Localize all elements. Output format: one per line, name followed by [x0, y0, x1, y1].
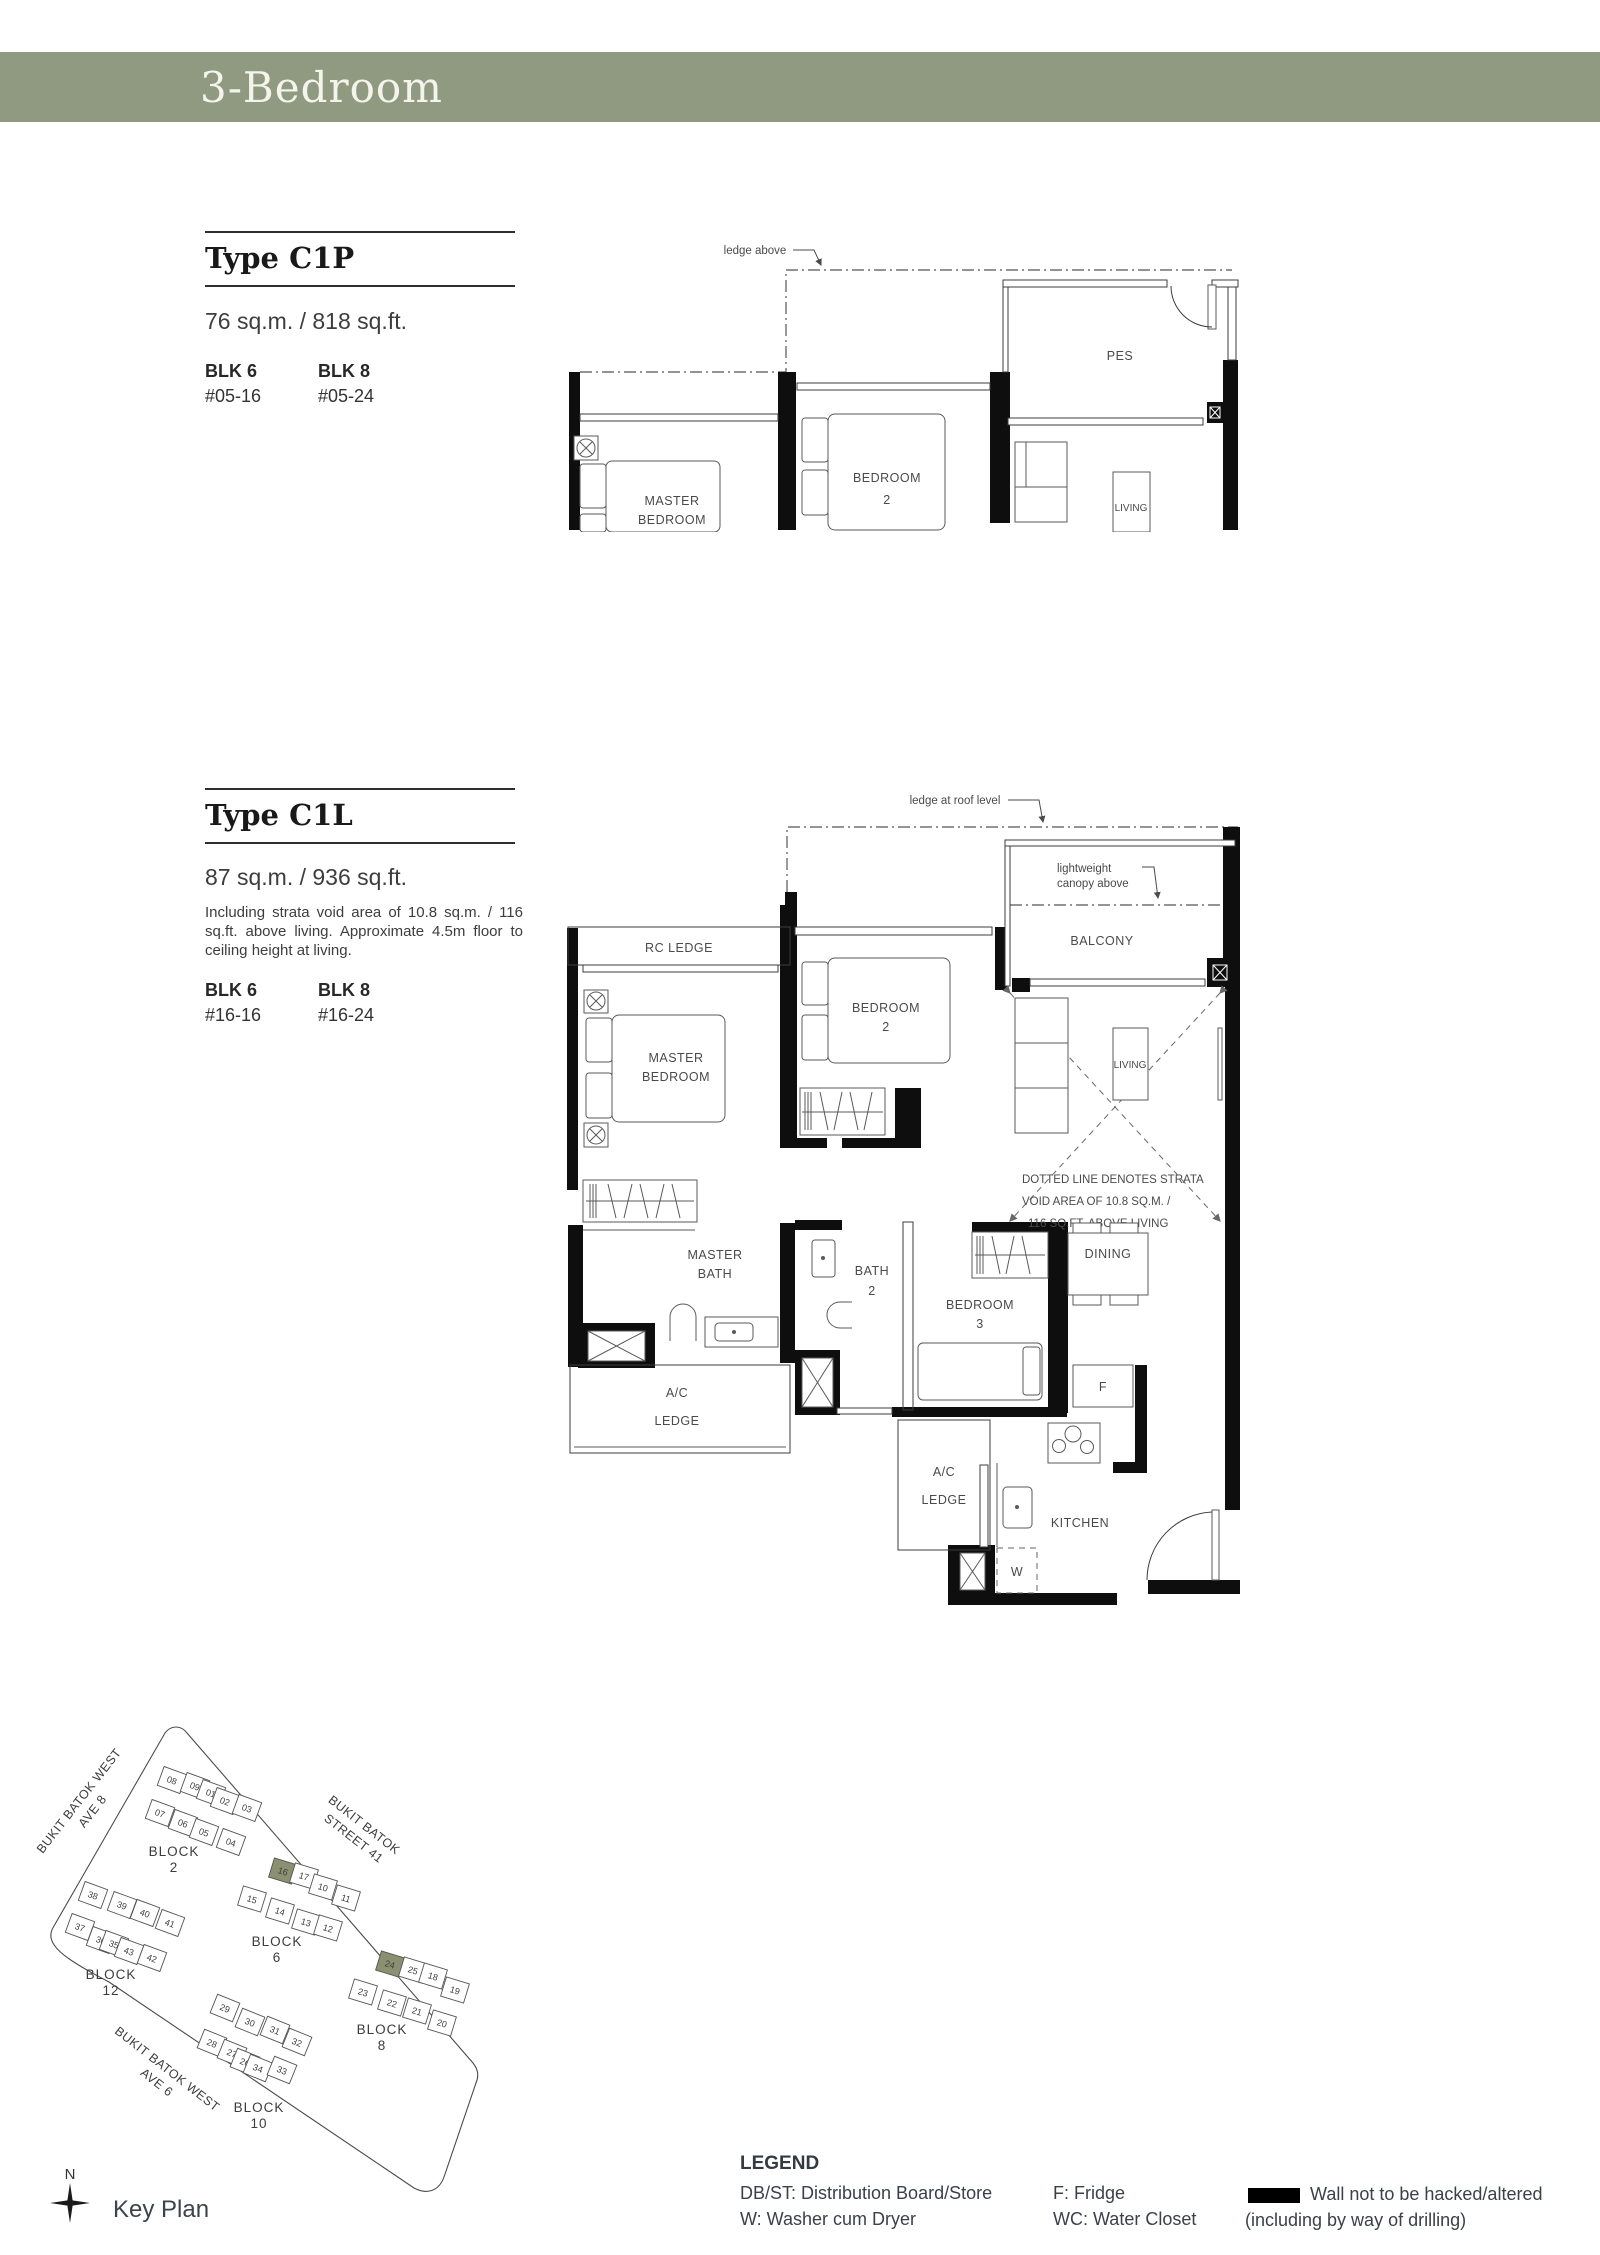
wardrobe	[972, 1232, 1048, 1278]
lamp-table-icon	[574, 436, 598, 460]
c1l-canopy-note-1: lightweight	[1057, 863, 1112, 875]
c1p-living: LIVING	[1113, 472, 1150, 532]
legend-col1: DB/ST: Distribution Board/Store W: Washe…	[740, 2180, 992, 2232]
c1l-bath2-label-1: BATH	[855, 1264, 889, 1278]
c1l-bed2-window	[795, 927, 992, 935]
c1p-pes-sliding-door	[1008, 418, 1203, 425]
c1l-balcony: BALCONY	[1005, 840, 1235, 987]
keyplan-block-label: BLOCK	[252, 1934, 303, 1949]
c1l-living-label: LIVING	[1114, 1060, 1147, 1071]
street-street41: BUKIT BATOK STREET 41	[315, 1793, 403, 1871]
c1l-bedroom2: BEDROOM 2	[800, 958, 950, 1135]
c1l-balcony-sliding-door	[1030, 979, 1205, 986]
sink-drain	[822, 1257, 825, 1260]
bed3-party-wall	[903, 1222, 913, 1410]
pillow	[802, 962, 828, 1005]
pillow	[802, 1015, 828, 1060]
c1l-ledge-note: ledge at roof level	[910, 795, 1001, 807]
pillow	[1023, 1347, 1040, 1395]
c1l-strata-note-2: VOID AREA OF 10.8 SQ.M. /	[1022, 1196, 1171, 1208]
legend-dbst: DB/ST: Distribution Board/Store	[740, 2180, 992, 2206]
c1l-living: LIVING DOTTED LINE DENOTES STRATA VOID A…	[1010, 993, 1222, 1230]
c1p-bedroom2: BEDROOM 2	[802, 414, 945, 530]
wardrobe	[583, 1180, 697, 1222]
chair	[1110, 1295, 1138, 1305]
c1l-kitchen-label: KITCHEN	[1051, 1516, 1109, 1530]
shaft-icon	[795, 1350, 840, 1415]
c1l-ac1-label-1: A/C	[666, 1386, 688, 1400]
keyplan-unit: 33	[267, 2056, 297, 2084]
stove	[1048, 1423, 1100, 1463]
keyplan-unit: 22	[378, 1990, 407, 2016]
c1l-blk6-label: BLK 6	[205, 980, 318, 1001]
shaft-icon	[948, 1545, 995, 1605]
keyplan-unit: 04	[216, 1828, 245, 1855]
type-c1l-info: Type C1L 87 sq.m. / 936 sq.ft. Including…	[205, 788, 515, 1026]
c1l-ledge-leader	[1008, 800, 1043, 822]
keyplan-unit: 15	[238, 1886, 267, 1912]
c1p-pes: PES	[1003, 280, 1238, 425]
type-c1p-area: 76 sq.m. / 818 sq.ft.	[205, 308, 515, 335]
keyplan-unit: 18	[419, 1963, 448, 1989]
legend-fridge: F: Fridge	[1053, 2180, 1196, 2206]
c1l-rc-ledge-label: RC LEDGE	[645, 941, 713, 955]
keyplan-unit: 29	[210, 1994, 240, 2022]
toilet	[670, 1304, 696, 1341]
svg-text:BUKIT BATOK WEST: BUKIT BATOK WEST	[34, 1746, 124, 1856]
c1l-bath2: BATH 2	[795, 1222, 913, 1415]
svg-text:N: N	[65, 2166, 76, 2183]
toilet	[827, 1302, 852, 1328]
c1l-ledge-dashline	[787, 827, 1238, 892]
c1l-ac-box-icon	[1207, 958, 1233, 987]
type-c1l-note: Including strata void area of 10.8 sq.m.…	[205, 903, 523, 960]
floorplan-page: 3-Bedroom Type C1P 76 sq.m. / 818 sq.ft.…	[0, 0, 1600, 2255]
keyplan-block-label: 8	[378, 2038, 387, 2053]
c1p-bed2-window	[797, 383, 990, 390]
c1l-master-bedroom: MASTER BEDROOM	[583, 990, 725, 1222]
keyplan-unit: 10	[309, 1874, 338, 1900]
page-title: 3-Bedroom	[0, 63, 443, 112]
keyplan-block-label: 10	[250, 2116, 267, 2131]
keyplan-block-label: BLOCK	[149, 1844, 200, 1859]
c1l-ac-ledge-kitchen: A/C LEDGE	[898, 1420, 990, 1550]
c1l-dining-label: DINING	[1085, 1247, 1132, 1261]
c1l-floorplan: ledge at roof level lightweight canopy a…	[550, 775, 1240, 1625]
street-ave8: BUKIT BATOK WEST AVE 8	[34, 1746, 138, 1867]
c1l-ac1-label-2: LEDGE	[655, 1414, 700, 1428]
c1p-master-bedroom: MASTER BEDROOM	[574, 436, 720, 532]
lamp-table-icon	[584, 1123, 608, 1147]
c1p-master-label-2: BEDROOM	[638, 513, 706, 527]
keyplan-unit: 38	[78, 1881, 107, 1908]
c1p-pes-door-arc	[1171, 286, 1212, 327]
chair	[1110, 1223, 1138, 1233]
c1p-living-label: LIVING	[1115, 503, 1148, 514]
keyplan-unit: 23	[349, 1979, 378, 2005]
key-plan-blocks: 080901020307060504BLOCK21617101115141312…	[65, 1766, 469, 2131]
c1l-kitchen: F KITCHEN W	[948, 1365, 1219, 1605]
page-header-banner: 3-Bedroom	[0, 52, 1600, 122]
c1p-entry-cabinet	[1015, 442, 1067, 522]
c1l-bed2-label-2: 2	[882, 1020, 889, 1034]
c1l-ac-ledge-left: A/C LEDGE	[570, 1365, 790, 1453]
legend-washer: W: Washer cum Dryer	[740, 2206, 992, 2232]
c1l-bedroom3: BEDROOM 3	[918, 1232, 1048, 1400]
pillow	[580, 514, 606, 532]
c1l-master-label-1: MASTER	[648, 1051, 703, 1065]
tv	[1218, 1028, 1222, 1100]
keyplan-unit: 19	[441, 1977, 470, 2003]
c1p-ledge-leader	[793, 250, 821, 265]
c1l-ac2-label-1: A/C	[933, 1465, 955, 1479]
sink-drain	[733, 1331, 736, 1334]
c1l-bath2-label-2: 2	[868, 1284, 875, 1298]
type-c1p-title: Type C1P	[205, 231, 515, 287]
chair	[1073, 1295, 1101, 1305]
c1l-canopy-leader	[1142, 867, 1158, 898]
c1p-ledge-note: ledge above	[724, 245, 787, 257]
c1p-master-window	[580, 414, 778, 421]
pillow	[802, 418, 828, 462]
wall-swatch-icon	[1248, 2188, 1300, 2203]
sofa	[1015, 998, 1068, 1133]
legend-wc: WC: Water Closet	[1053, 2206, 1196, 2232]
keyplan-unit: 41	[155, 1909, 184, 1936]
pillow	[586, 1073, 612, 1118]
keyplan-block-label: BLOCK	[234, 2100, 285, 2115]
c1l-washer-label: W	[1011, 1565, 1023, 1579]
c1l-blk8-label: BLK 8	[318, 980, 374, 1001]
type-c1l-area: 87 sq.m. / 936 sq.ft.	[205, 864, 515, 891]
c1l-masterbath-label-2: BATH	[698, 1267, 732, 1281]
keyplan-block-label: 2	[170, 1860, 179, 1875]
c1l-blk6-unit: #16-16	[205, 1005, 318, 1026]
c1l-blk8-unit: #16-24	[318, 1005, 374, 1026]
c1l-dining: DINING	[1068, 1223, 1148, 1305]
c1p-blk8-unit: #05-24	[318, 386, 374, 407]
c1p-blk6-unit: #05-16	[205, 386, 318, 407]
c1l-rc-ledge: RC LEDGE	[568, 927, 790, 972]
c1p-blk6-label: BLK 6	[205, 361, 318, 382]
compass-icon: N	[50, 2166, 90, 2223]
keyplan-block-label: 12	[102, 1983, 119, 1998]
dining-table	[1068, 1233, 1148, 1295]
c1l-bed3-label-1: BEDROOM	[946, 1298, 1014, 1312]
keyplan-block-label: 6	[273, 1950, 282, 1965]
c1p-bed2-label-1: BEDROOM	[853, 471, 921, 485]
sink-drain	[1016, 1506, 1019, 1509]
legend-col2: F: Fridge WC: Water Closet	[1053, 2180, 1196, 2232]
keyplan-unit: 20	[428, 2010, 457, 2036]
shaft-icon	[578, 1323, 655, 1368]
pillow	[586, 1018, 612, 1062]
c1p-bed2-label-2: 2	[883, 493, 890, 507]
keyplan-unit: 30	[235, 2008, 265, 2036]
key-plan-label: Key Plan	[113, 2196, 209, 2223]
c1l-strata-note-1: DOTTED LINE DENOTES STRATA	[1022, 1174, 1204, 1186]
c1p-blk8-label: BLK 8	[318, 361, 374, 382]
c1p-pes-label: PES	[1107, 349, 1134, 363]
lamp-table-icon	[584, 990, 608, 1013]
c1l-balcony-label: BALCONY	[1070, 934, 1133, 948]
washer: W	[997, 1548, 1037, 1593]
c1l-master-bath: MASTER BATH	[578, 1230, 778, 1368]
keyplan-unit: 14	[266, 1898, 295, 1924]
keyplan-unit: 12	[314, 1915, 343, 1941]
entrance-door-leaf	[1212, 1510, 1219, 1580]
legend-title: LEGEND	[740, 2153, 819, 2175]
c1p-pes-door-leaf	[1208, 285, 1216, 329]
c1l-bed2-label-1: BEDROOM	[852, 1001, 920, 1015]
type-c1l-title: Type C1L	[205, 788, 515, 844]
c1p-master-label-1: MASTER	[644, 494, 699, 508]
c1l-ac2-label-2: LEDGE	[922, 1493, 967, 1507]
key-plan: BUKIT BATOK WEST AVE 8 BUKIT BATOK STREE…	[25, 1715, 485, 2235]
keyplan-unit: 11	[332, 1885, 361, 1911]
keyplan-unit: 21	[403, 1998, 432, 2024]
c1l-fridge-label: F	[1099, 1380, 1107, 1394]
chair	[1073, 1223, 1101, 1233]
type-c1p-info: Type C1P 76 sq.m. / 818 sq.ft. BLK 6 #05…	[205, 231, 515, 407]
c1p-ac-box-icon	[1207, 402, 1223, 423]
c1l-masterbath-label-1: MASTER	[687, 1248, 742, 1262]
legend-wall-note-2: (including by way of drilling)	[1245, 2207, 1466, 2233]
c1l-master-label-2: BEDROOM	[642, 1070, 710, 1084]
c1l-canopy-note-2: canopy above	[1057, 878, 1129, 890]
c1p-floorplan: ledge above PES	[560, 164, 1240, 532]
bed	[612, 1015, 725, 1122]
keyplan-block-label: BLOCK	[86, 1967, 137, 1982]
c1l-bed3-label-2: 3	[976, 1317, 983, 1331]
keyplan-block-label: BLOCK	[357, 2022, 408, 2037]
entrance-door-arc	[1147, 1512, 1212, 1580]
wardrobe	[800, 1088, 885, 1135]
legend-wall-note-1: Wall not to be hacked/altered	[1310, 2181, 1542, 2207]
pillow	[580, 464, 606, 508]
pillow	[802, 470, 828, 515]
